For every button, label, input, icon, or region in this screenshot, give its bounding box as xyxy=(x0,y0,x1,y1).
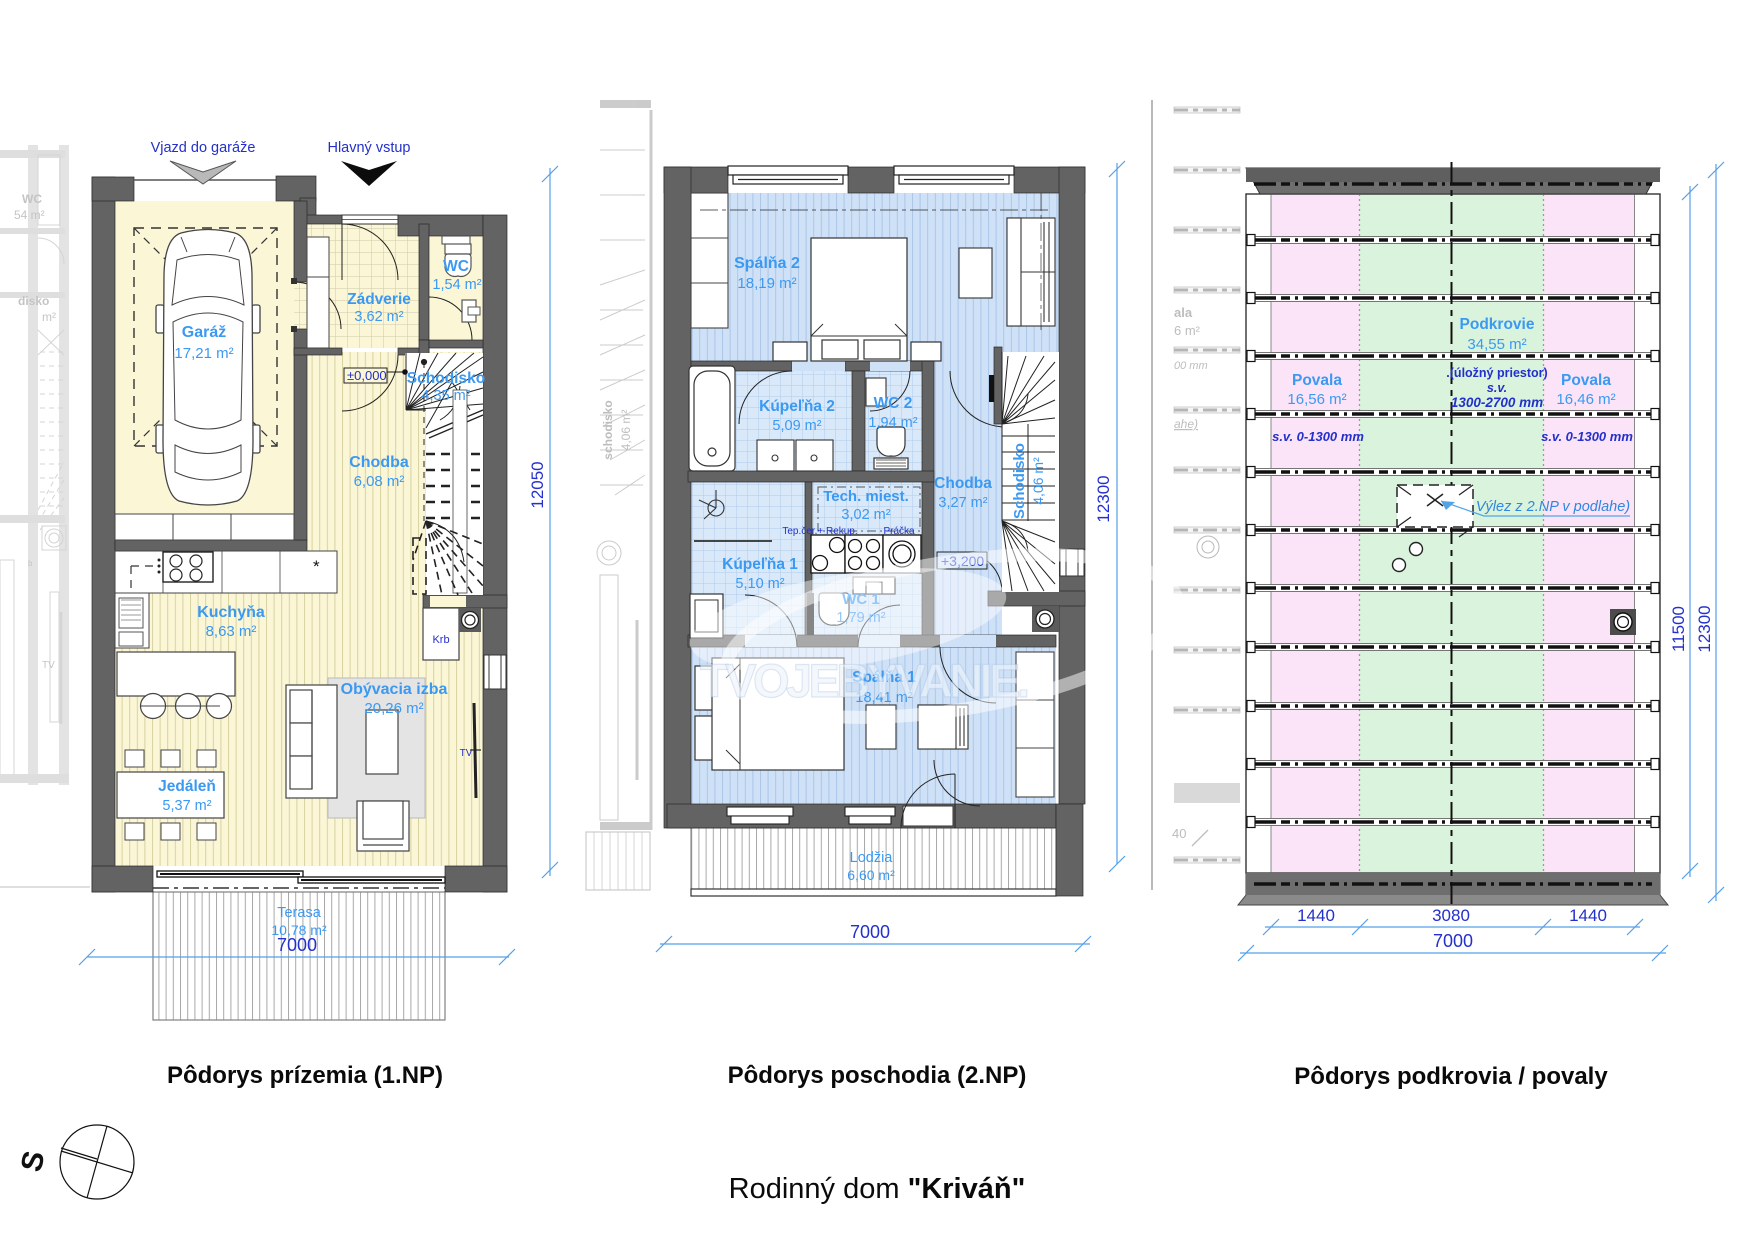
svg-text:TVOJEBYVANIE.: TVOJEBYVANIE. xyxy=(700,654,1030,707)
svg-text:00 mm: 00 mm xyxy=(1174,360,1208,372)
svg-text:Krb: Krb xyxy=(432,634,449,646)
svg-text:WC 2: WC 2 xyxy=(874,395,913,412)
svg-text:b: b xyxy=(28,559,33,568)
svg-text:1440: 1440 xyxy=(1297,906,1335,925)
svg-text:1300-2700 mm: 1300-2700 mm xyxy=(1451,395,1543,410)
svg-text:Zádverie: Zádverie xyxy=(347,291,411,308)
svg-text:Pôdorys poschodia (2.NP): Pôdorys poschodia (2.NP) xyxy=(728,1062,1027,1089)
svg-text:7000: 7000 xyxy=(850,922,890,942)
svg-text:17,21 m²: 17,21 m² xyxy=(174,345,233,362)
svg-text:Pôdorys podkrovia / povaly: Pôdorys podkrovia / povaly xyxy=(1294,1063,1608,1090)
svg-text:1440: 1440 xyxy=(1569,906,1607,925)
svg-text:3,27 m²: 3,27 m² xyxy=(938,495,987,511)
svg-text:Hlavný vstup: Hlavný vstup xyxy=(327,140,410,156)
svg-text:ala: ala xyxy=(1174,305,1193,320)
svg-text:disko: disko xyxy=(18,294,49,308)
svg-text:Spálňa 2: Spálňa 2 xyxy=(734,255,800,272)
svg-text:4,35 m²: 4,35 m² xyxy=(421,388,470,404)
svg-text:ahe): ahe) xyxy=(1174,417,1198,431)
svg-text:12050: 12050 xyxy=(528,461,547,508)
svg-text:Tep.čer.+ Rekup.: Tep.čer.+ Rekup. xyxy=(782,526,857,537)
svg-text:Kuchyňa: Kuchyňa xyxy=(197,604,265,621)
svg-text:TV: TV xyxy=(42,660,55,671)
svg-text:3080: 3080 xyxy=(1432,906,1470,925)
svg-text:Vjazd do garáže: Vjazd do garáže xyxy=(151,140,256,156)
svg-text:schodisko: schodisko xyxy=(601,400,615,459)
svg-text:Garáž: Garáž xyxy=(182,324,226,341)
svg-text:Povala: Povala xyxy=(1561,372,1611,389)
svg-text:Lodžia: Lodžia xyxy=(850,850,894,866)
svg-text:Kúpeľňa 2: Kúpeľňa 2 xyxy=(759,398,835,415)
svg-text:Tech. miest.: Tech. miest. xyxy=(823,488,909,505)
svg-text:16,56 m²: 16,56 m² xyxy=(1287,391,1346,408)
svg-text:±0,000: ±0,000 xyxy=(347,368,387,383)
svg-text:1,94 m²: 1,94 m² xyxy=(868,415,917,431)
svg-text:6,08 m²: 6,08 m² xyxy=(354,473,405,490)
svg-text:3,62 m²: 3,62 m² xyxy=(354,309,403,325)
svg-text:Schodisko: Schodisko xyxy=(407,370,485,387)
svg-text:54 m²: 54 m² xyxy=(14,208,45,222)
svg-text:s.v. 0-1300 mm: s.v. 0-1300 mm xyxy=(1541,429,1633,444)
svg-text:WC: WC xyxy=(22,192,42,206)
svg-text:40: 40 xyxy=(1172,826,1186,841)
svg-text:.(úložný priestor): .(úložný priestor) xyxy=(1446,366,1547,380)
svg-text:5,09 m²: 5,09 m² xyxy=(772,418,821,434)
svg-text:s.v. 0-1300 mm: s.v. 0-1300 mm xyxy=(1272,429,1364,444)
svg-text:m²: m² xyxy=(42,310,56,324)
svg-text:*: * xyxy=(313,557,320,576)
svg-text:1,54 m²: 1,54 m² xyxy=(432,277,481,293)
svg-text:12300: 12300 xyxy=(1094,475,1113,522)
svg-text:Obývacia izba: Obývacia izba xyxy=(341,681,448,698)
svg-text:3,02 m²: 3,02 m² xyxy=(841,507,890,523)
svg-text:6,60 m²: 6,60 m² xyxy=(847,867,895,883)
svg-text:18,19 m²: 18,19 m² xyxy=(737,275,796,292)
svg-text:Chodba: Chodba xyxy=(349,454,409,471)
svg-text:Chodba: Chodba xyxy=(934,475,992,492)
svg-text:Práčka: Práčka xyxy=(883,526,915,537)
svg-text:6 m²: 6 m² xyxy=(1174,323,1201,338)
svg-text:20,26 m²: 20,26 m² xyxy=(364,700,423,717)
svg-text:34,55 m²: 34,55 m² xyxy=(1467,336,1526,353)
svg-text:Výlez z 2.NP v podlahe): Výlez z 2.NP v podlahe) xyxy=(1476,499,1630,515)
svg-text:Pôdorys prízemia (1.NP): Pôdorys prízemia (1.NP) xyxy=(167,1062,443,1089)
svg-text:5,37 m²: 5,37 m² xyxy=(162,798,211,814)
svg-text:8,63 m²: 8,63 m² xyxy=(206,623,257,640)
svg-text:11500: 11500 xyxy=(1669,606,1688,652)
svg-text:7000: 7000 xyxy=(1433,931,1473,951)
svg-text:4,06 m²: 4,06 m² xyxy=(1030,457,1046,505)
svg-text:TV: TV xyxy=(460,748,473,759)
svg-text:16,46 m²: 16,46 m² xyxy=(1556,391,1615,408)
svg-text:Povala: Povala xyxy=(1292,372,1342,389)
svg-text:s.v.: s.v. xyxy=(1487,381,1507,395)
svg-text:12300: 12300 xyxy=(1695,605,1714,652)
svg-text:WC: WC xyxy=(443,258,469,275)
svg-text:Rodinný dom "Kriváň": Rodinný dom "Kriváň" xyxy=(729,1173,1026,1205)
svg-text:7000: 7000 xyxy=(277,935,317,955)
svg-text:Jedáleň: Jedáleň xyxy=(158,778,216,795)
svg-text:Terasa: Terasa xyxy=(277,905,321,921)
svg-text:Kúpeľňa 1: Kúpeľňa 1 xyxy=(722,556,798,573)
svg-text:Schodisko: Schodisko xyxy=(1011,443,1028,519)
svg-text:4,06 m²: 4,06 m² xyxy=(619,410,633,451)
svg-text:Podkrovie: Podkrovie xyxy=(1460,316,1535,333)
